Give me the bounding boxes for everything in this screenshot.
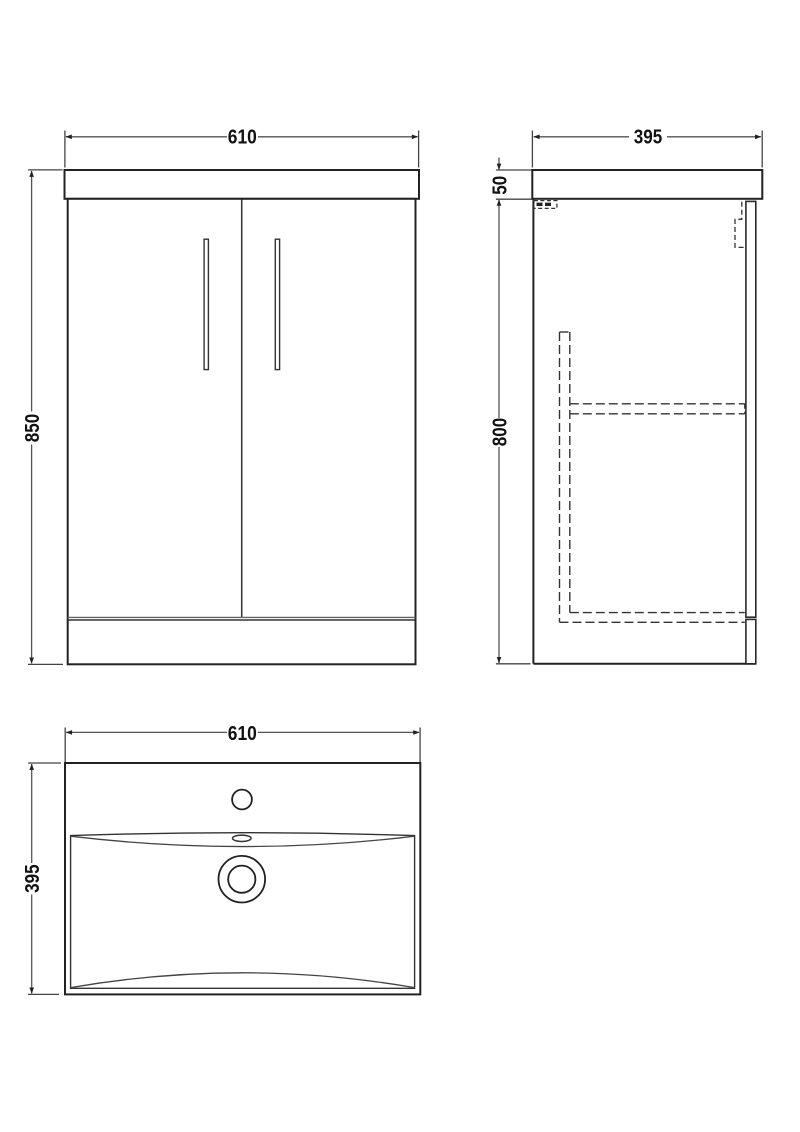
svg-text:610: 610: [228, 723, 257, 745]
svg-text:50: 50: [489, 176, 511, 195]
svg-text:395: 395: [634, 126, 663, 148]
svg-text:395: 395: [22, 864, 44, 893]
svg-text:610: 610: [228, 126, 257, 148]
svg-text:800: 800: [489, 418, 511, 447]
svg-text:850: 850: [22, 414, 44, 443]
